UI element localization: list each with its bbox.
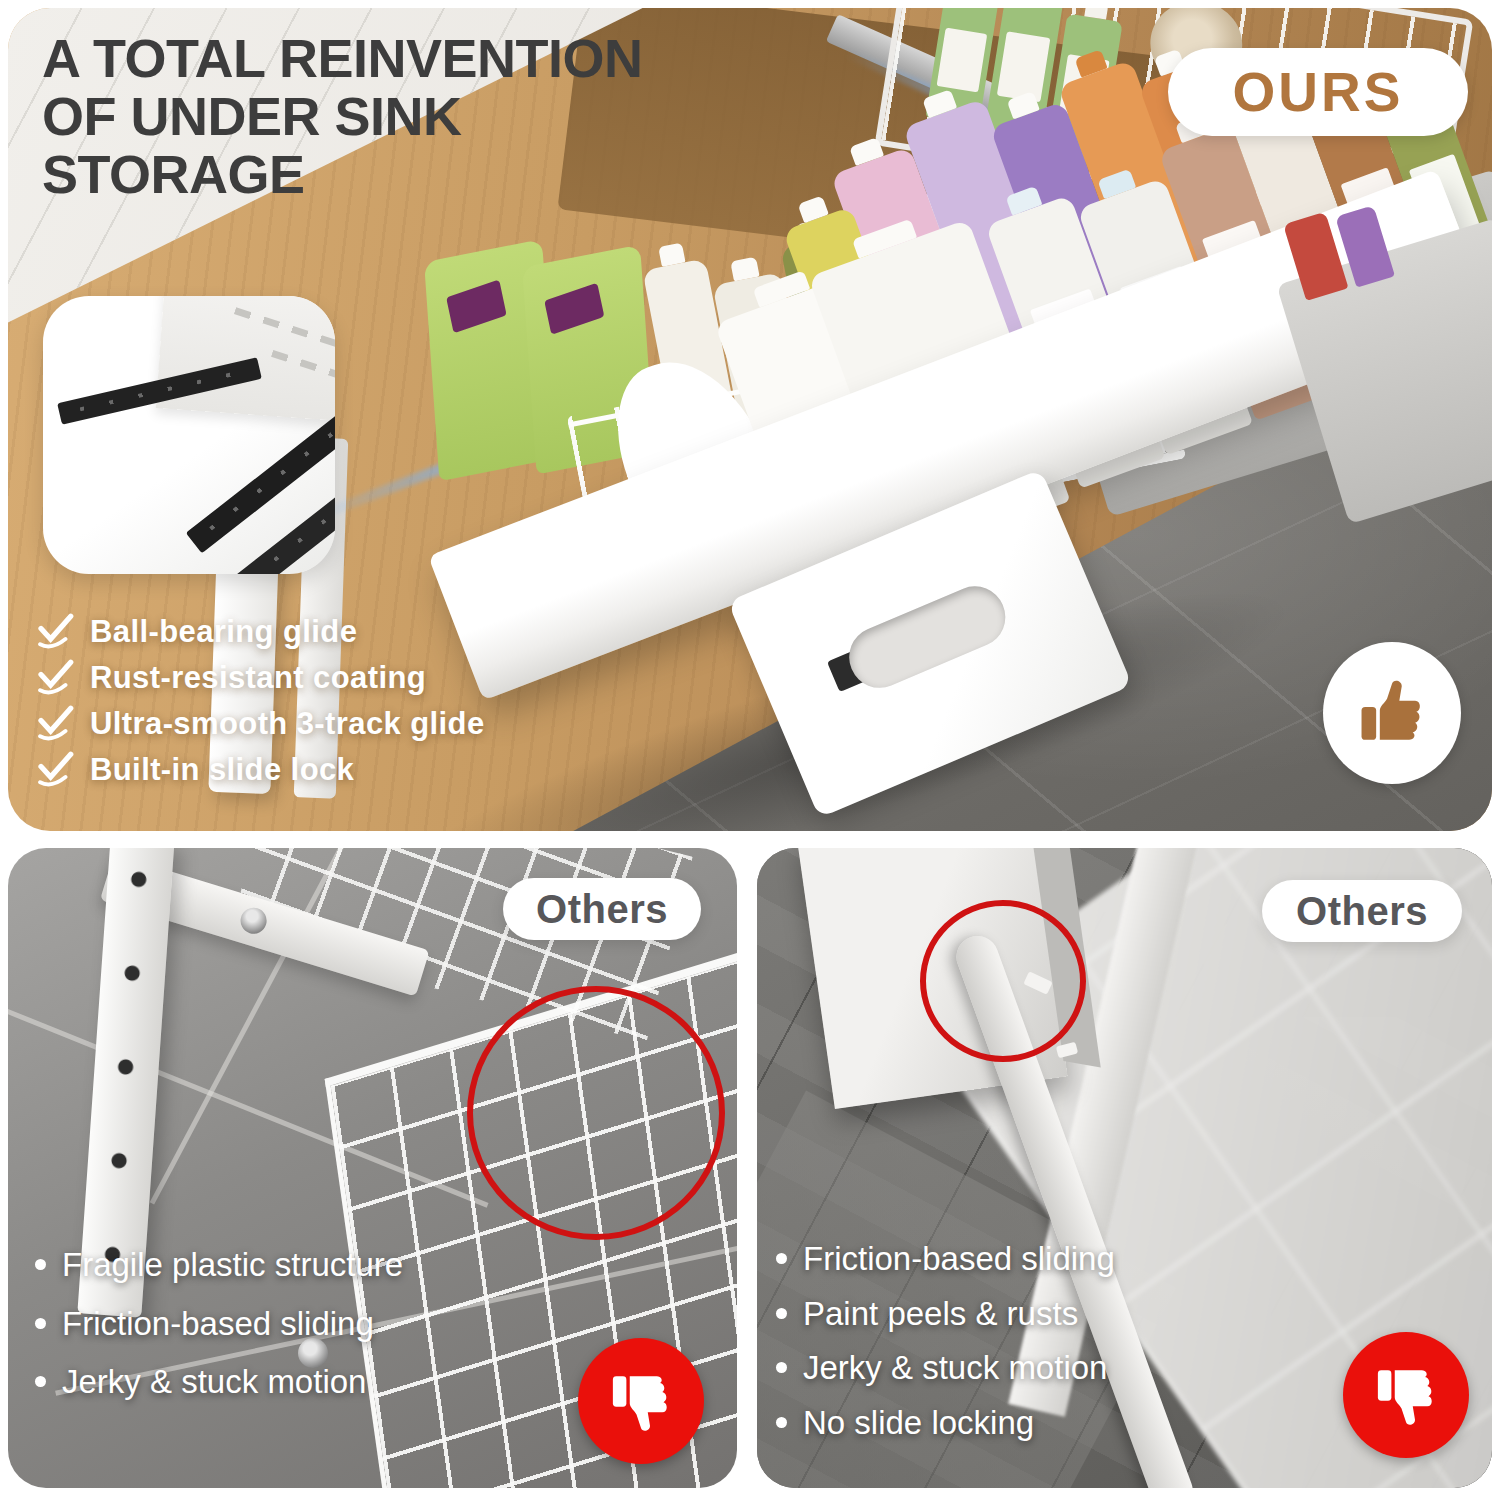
check-icon	[34, 704, 76, 744]
ours-badge: OURS	[1168, 48, 1468, 136]
others-badge: Others	[503, 878, 701, 940]
check-icon	[34, 750, 76, 790]
thumbs-down-glyph	[1370, 1359, 1442, 1431]
competitor-left-panel: Others Fragile plastic structure Frictio…	[8, 848, 737, 1488]
issue-item: Paint peels & rusts	[769, 1295, 1369, 1333]
check-icon	[34, 658, 76, 698]
others-badge-label: Others	[536, 887, 668, 932]
feature-label: Ultra-smooth 3-track glide	[90, 706, 485, 742]
headline-line: STORAGE	[42, 146, 643, 204]
issue-list: Friction-based sliding Paint peels & rus…	[769, 1240, 1369, 1458]
others-badge-label: Others	[1296, 889, 1428, 934]
bolt	[237, 904, 269, 936]
product-comparison-image: A TOTAL REINVENTION OF UNDER SINK STORAG…	[0, 0, 1500, 1494]
feature-label: Built-in slide lock	[90, 752, 354, 788]
slide-rail-inset-photo	[43, 296, 335, 574]
others-badge: Others	[1262, 880, 1462, 942]
issue-item: Friction-based sliding	[769, 1240, 1369, 1278]
headline-line: OF UNDER SINK	[42, 88, 643, 146]
ours-panel: A TOTAL REINVENTION OF UNDER SINK STORAG…	[8, 8, 1492, 831]
issue-item: No slide locking	[769, 1404, 1369, 1442]
ours-badge-label: OURS	[1233, 60, 1404, 124]
feature-label: Rust-resistant coating	[90, 660, 426, 696]
feature-item: Built-in slide lock	[34, 747, 485, 793]
feature-item: Ball-bearing glide	[34, 609, 485, 655]
feature-item: Rust-resistant coating	[34, 655, 485, 701]
headline-line: A TOTAL REINVENTION	[42, 30, 643, 88]
vent-slots	[234, 307, 335, 360]
check-icon	[34, 612, 76, 652]
issue-item: Fragile plastic structure	[28, 1246, 466, 1284]
thumbs-up-icon	[1323, 642, 1461, 784]
thumbs-down-glyph	[605, 1365, 677, 1437]
issue-list: Fragile plastic structure Friction-based…	[28, 1246, 466, 1422]
competitor-right-panel: Others Friction-based sliding Paint peel…	[757, 848, 1492, 1488]
feature-label: Ball-bearing glide	[90, 614, 357, 650]
handle-slot	[827, 622, 934, 692]
feature-item: Ultra-smooth 3-track glide	[34, 701, 485, 747]
issue-item: Jerky & stuck motion	[28, 1363, 466, 1401]
red-annotation-circle	[920, 900, 1086, 1062]
thumbs-up-glyph	[1353, 674, 1431, 752]
issue-item: Friction-based sliding	[28, 1305, 466, 1343]
red-annotation-circle	[467, 986, 725, 1240]
thumbs-down-icon	[578, 1338, 704, 1464]
feature-list: Ball-bearing glide Rust-resistant coatin…	[34, 609, 485, 793]
issue-item: Jerky & stuck motion	[769, 1349, 1369, 1387]
vent-slots	[271, 350, 335, 403]
headline: A TOTAL REINVENTION OF UNDER SINK STORAG…	[42, 30, 643, 203]
thumbs-down-icon	[1343, 1332, 1469, 1458]
